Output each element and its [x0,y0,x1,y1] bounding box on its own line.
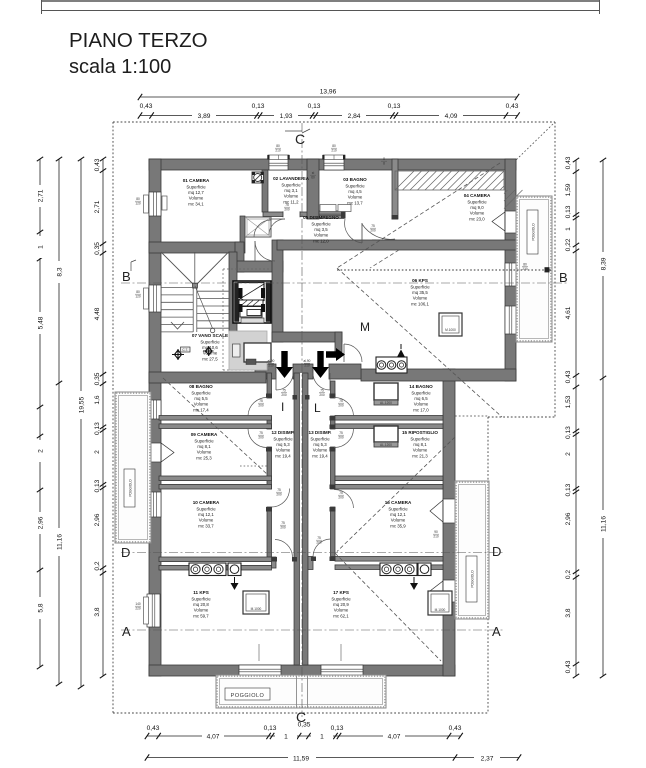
svg-text:mq 5,3: mq 5,3 [276,442,290,447]
svg-text:mq 4,5: mq 4,5 [348,189,362,194]
svg-text:12 DISIMP.: 12 DISIMP. [272,430,295,435]
svg-text:60: 60 [311,176,315,180]
svg-text:Volume: Volume [189,196,204,201]
svg-text:D: D [492,544,501,559]
svg-text:0,43: 0,43 [449,725,462,732]
svg-text:AL.1200: AL.1200 [380,401,392,405]
svg-text:80: 80 [276,144,280,148]
svg-text:0,13: 0,13 [94,422,101,435]
svg-text:M.1000: M.1000 [251,607,262,611]
svg-text:mc 59,7: mc 59,7 [193,613,209,618]
svg-text:mc 33,7: mc 33,7 [198,523,214,528]
svg-text:1,93: 1,93 [280,113,293,120]
svg-text:4,07: 4,07 [207,733,220,740]
svg-text:Volume: Volume [413,296,428,301]
svg-text:0,35: 0,35 [94,372,101,385]
svg-text:75: 75 [320,389,324,393]
svg-text:200: 200 [258,404,264,408]
svg-text:mq 20,9: mq 20,9 [333,602,349,607]
svg-text:Volume: Volume [276,448,291,453]
svg-text:2,96: 2,96 [565,512,572,525]
svg-text:5,48: 5,48 [37,316,44,329]
svg-text:al.90: al.90 [268,359,275,363]
svg-text:8: 8 [383,162,385,166]
svg-text:C.T.: C.T. [182,348,188,352]
svg-text:11,16: 11,16 [56,534,63,550]
svg-text:120: 120 [135,202,141,206]
svg-text:75: 75 [259,399,263,403]
svg-text:200: 200 [280,526,286,530]
svg-text:75: 75 [285,203,289,207]
svg-text:mq 5,3: mq 5,3 [313,442,327,447]
svg-text:0,43: 0,43 [565,370,572,383]
svg-text:75: 75 [317,536,321,540]
svg-text:Superficie: Superficie [196,507,216,512]
svg-text:11,16: 11,16 [600,516,607,532]
svg-text:220: 220 [135,607,141,611]
svg-text:Superficie: Superficie [281,183,301,188]
svg-text:11 KPS: 11 KPS [193,590,209,595]
svg-text:A: A [492,624,501,639]
svg-text:st: st [312,171,315,175]
svg-text:0,2: 0,2 [94,561,101,570]
svg-text:17 KPS: 17 KPS [333,590,349,595]
svg-text:200: 200 [338,436,344,440]
svg-text:2,96: 2,96 [94,513,101,526]
svg-text:200: 200 [338,496,344,500]
svg-text:75: 75 [371,224,375,228]
svg-text:02 LAVANDERIA: 02 LAVANDERIA [273,176,310,181]
svg-text:0,13: 0,13 [565,205,572,218]
svg-text:POGGIOLO: POGGIOLO [532,223,536,241]
svg-text:2,37: 2,37 [481,756,494,763]
svg-text:Volume: Volume [194,402,209,407]
svg-text:Superficie: Superficie [191,597,211,602]
svg-text:mc 19,4: mc 19,4 [312,453,328,458]
svg-text:Superficie: Superficie [345,184,365,189]
svg-text:200: 200 [370,229,376,233]
svg-text:80: 80 [136,197,140,201]
svg-text:04 CAMERA: 04 CAMERA [464,193,491,198]
svg-text:11,59: 11,59 [293,756,309,763]
svg-text:mq 8,1: mq 8,1 [197,444,211,449]
svg-text:mq 6,5: mq 6,5 [414,396,428,401]
svg-text:4,09: 4,09 [445,113,458,120]
svg-text:210: 210 [275,149,281,153]
svg-text:2,71: 2,71 [94,200,101,213]
svg-text:Superficie: Superficie [331,597,351,602]
svg-text:mq 8,1: mq 8,1 [413,442,427,447]
svg-text:POGGIOLO: POGGIOLO [231,693,265,699]
svg-text:1: 1 [565,227,572,231]
svg-text:75: 75 [282,389,286,393]
svg-text:4,48: 4,48 [94,307,101,320]
svg-text:mc 17,4: mc 17,4 [193,407,209,412]
svg-text:80: 80 [523,263,527,267]
svg-text:80: 80 [136,290,140,294]
svg-text:75: 75 [339,431,343,435]
svg-text:0,43: 0,43 [565,156,572,169]
svg-text:80: 80 [332,144,336,148]
svg-text:140: 140 [135,602,141,606]
svg-text:09 CAMERA: 09 CAMERA [191,432,218,437]
svg-text:4,61: 4,61 [565,306,572,319]
svg-text:Volume: Volume [348,195,363,200]
svg-text:Superficie: Superficie [194,439,214,444]
svg-text:PIANO TERZO: PIANO TERZO [69,29,208,52]
svg-text:2,71: 2,71 [37,189,44,202]
svg-text:mq 20,8: mq 20,8 [193,602,209,607]
svg-text:Superficie: Superficie [388,507,408,512]
svg-text:Volume: Volume [313,448,328,453]
svg-text:15 RIPOSTIGLIO: 15 RIPOSTIGLIO [402,430,438,435]
svg-text:0,43: 0,43 [506,103,519,110]
svg-text:POGGIOLO: POGGIOLO [129,479,133,497]
svg-text:mc 25,3: mc 25,3 [196,455,212,460]
svg-text:B: B [559,270,568,285]
svg-text:mq 5,5: mq 5,5 [194,396,208,401]
svg-text:Superficie: Superficie [273,437,293,442]
svg-text:210: 210 [268,364,274,368]
svg-text:0,13: 0,13 [331,725,344,732]
svg-text:mc 27,5: mc 27,5 [202,356,218,361]
svg-text:Volume: Volume [203,351,218,356]
svg-text:1,53: 1,53 [565,395,572,408]
svg-text:al.90: al.90 [304,359,311,363]
svg-text:0,13: 0,13 [388,103,401,110]
svg-text:M.1000: M.1000 [445,328,456,332]
svg-text:0,13: 0,13 [264,725,277,732]
svg-text:0,43: 0,43 [94,158,101,171]
svg-text:0,43: 0,43 [565,660,572,673]
svg-text:07 VANO SCALE: 07 VANO SCALE [192,333,228,338]
svg-text:0,2: 0,2 [565,570,572,579]
svg-text:Volume: Volume [199,518,214,523]
svg-text:06 KPS: 06 KPS [412,278,428,283]
svg-text:mc 62,1: mc 62,1 [333,613,349,618]
svg-text:C: C [295,131,305,147]
svg-text:0,13: 0,13 [252,103,265,110]
svg-text:13 DISIMP.: 13 DISIMP. [309,430,332,435]
svg-text:A: A [122,624,131,639]
svg-text:03 BAGNO: 03 BAGNO [343,177,367,182]
svg-text:Volume: Volume [413,448,428,453]
svg-text:13,96: 13,96 [320,89,337,96]
svg-text:2,96: 2,96 [37,516,44,529]
svg-text:0,13: 0,13 [308,103,321,110]
svg-text:0,13: 0,13 [565,483,572,496]
svg-text:mq 3,5: mq 3,5 [314,227,328,232]
svg-text:210: 210 [304,364,310,368]
svg-text:230: 230 [522,267,528,271]
svg-text:AL.1200: AL.1200 [380,443,392,447]
svg-text:mq 35,5: mq 35,5 [412,290,428,295]
svg-text:L: L [314,401,321,415]
svg-text:0,43: 0,43 [140,103,153,110]
svg-text:1,59: 1,59 [565,183,572,196]
svg-text:C: C [296,709,306,725]
svg-text:scala 1:100: scala 1:100 [69,56,171,78]
svg-text:Volume: Volume [334,608,349,613]
svg-text:Volume: Volume [414,402,429,407]
svg-text:10 CAMERA: 10 CAMERA [193,500,220,505]
svg-text:200: 200 [316,541,322,545]
svg-text:1: 1 [37,245,44,249]
svg-text:1: 1 [320,733,324,740]
svg-text:Volume: Volume [284,194,299,199]
svg-text:M: M [360,320,370,334]
svg-text:90: 90 [434,530,438,534]
svg-text:Superficie: Superficie [311,222,331,227]
svg-text:mc 35,9: mc 35,9 [390,523,406,528]
svg-text:8,3: 8,3 [56,267,63,276]
svg-text:200: 200 [338,404,344,408]
svg-text:120: 120 [135,295,141,299]
svg-text:210: 210 [433,535,439,539]
svg-text:8: 8 [383,157,385,161]
svg-text:210: 210 [331,149,337,153]
svg-text:Superficie: Superficie [191,391,211,396]
svg-text:M.1000: M.1000 [435,608,446,612]
svg-text:200: 200 [276,493,282,497]
svg-text:2,84: 2,84 [348,113,361,120]
svg-text:Superficie: Superficie [186,185,206,190]
svg-text:mq 12,1: mq 12,1 [390,512,406,517]
svg-text:I: I [281,400,284,414]
svg-text:mq 3,1: mq 3,1 [284,188,298,193]
svg-text:4,07: 4,07 [388,733,401,740]
svg-text:Superficie: Superficie [467,200,487,205]
svg-text:200: 200 [284,208,290,212]
svg-text:75: 75 [281,521,285,525]
svg-text:01 CAMERA: 01 CAMERA [183,178,210,183]
svg-text:POGGIOLO: POGGIOLO [471,570,475,588]
svg-text:Volume: Volume [197,450,212,455]
svg-text:8,39: 8,39 [600,257,607,270]
svg-text:Volume: Volume [194,608,209,613]
svg-text:75: 75 [339,399,343,403]
svg-text:Volume: Volume [314,233,329,238]
svg-text:0,13: 0,13 [565,426,572,439]
svg-text:mc 12,0: mc 12,0 [313,238,329,243]
svg-text:19,55: 19,55 [78,396,85,413]
svg-text:200: 200 [319,393,325,397]
svg-text:2: 2 [94,450,101,454]
svg-text:0,43: 0,43 [147,725,160,732]
svg-text:0,22: 0,22 [565,238,572,251]
svg-text:14 BAGNO: 14 BAGNO [409,384,433,389]
svg-text:Superficie: Superficie [411,391,431,396]
svg-text:Volume: Volume [391,518,406,523]
svg-text:75: 75 [259,431,263,435]
svg-text:3,89: 3,89 [198,113,211,120]
svg-text:Superficie: Superficie [310,437,330,442]
svg-text:3,8: 3,8 [565,608,572,617]
svg-text:mc 23,0: mc 23,0 [469,216,485,221]
svg-text:08 BAGNO: 08 BAGNO [189,384,213,389]
svg-text:05 DISIMPEGNO: 05 DISIMPEGNO [303,215,339,220]
svg-text:mq 12,7: mq 12,7 [188,190,204,195]
svg-text:1,6: 1,6 [94,395,101,404]
svg-text:mc 21,3: mc 21,3 [412,453,428,458]
svg-text:D: D [121,545,130,560]
svg-text:mc 106,1: mc 106,1 [411,301,429,306]
svg-text:B: B [122,269,131,284]
svg-text:mc 19,4: mc 19,4 [275,453,291,458]
svg-text:1: 1 [284,733,288,740]
svg-text:5,8: 5,8 [37,603,44,612]
svg-text:0,35: 0,35 [94,242,101,255]
svg-text:Superficie: Superficie [410,437,430,442]
svg-text:mq 9,0: mq 9,0 [470,205,484,210]
svg-text:3,8: 3,8 [94,607,101,616]
svg-text:Superficie: Superficie [410,285,430,290]
svg-text:mc 34,1: mc 34,1 [188,201,204,206]
svg-text:0,13: 0,13 [94,479,101,492]
svg-text:Volume: Volume [470,211,485,216]
svg-text:Superficie: Superficie [200,340,220,345]
svg-text:200: 200 [258,436,264,440]
svg-text:75: 75 [277,488,281,492]
svg-text:2: 2 [37,449,44,453]
svg-text:200: 200 [281,393,287,397]
svg-text:mc 17,0: mc 17,0 [413,407,429,412]
svg-text:2: 2 [565,452,572,456]
svg-text:mq 10,6: mq 10,6 [202,345,218,350]
svg-text:mq 12,1: mq 12,1 [198,512,214,517]
svg-text:75: 75 [339,491,343,495]
